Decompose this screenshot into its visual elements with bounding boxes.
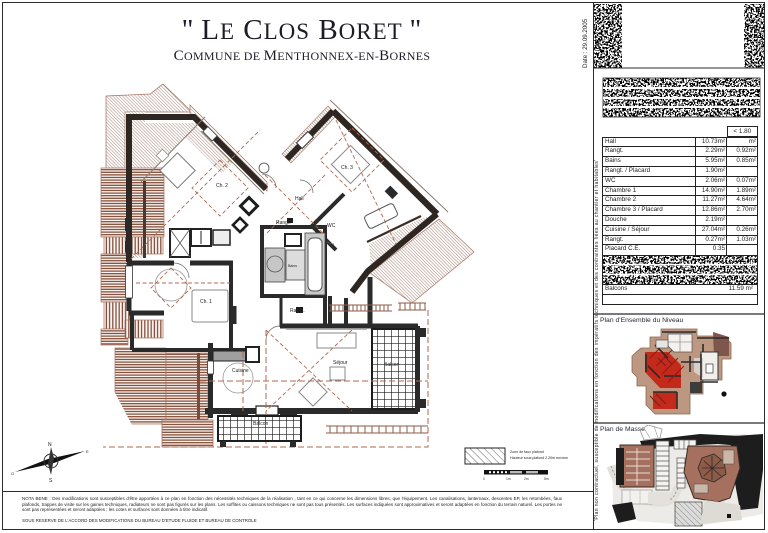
svg-text:Ch. 2: Ch. 2 bbox=[216, 183, 228, 189]
svg-text:S: S bbox=[49, 478, 53, 484]
svg-text:Ch. 3: Ch. 3 bbox=[341, 165, 353, 171]
svg-text:Zone de faux plafond: Zone de faux plafond bbox=[510, 450, 544, 454]
svg-text:0: 0 bbox=[483, 477, 485, 481]
svg-text:E: E bbox=[86, 449, 89, 454]
svg-text:Balcon: Balcon bbox=[253, 421, 269, 427]
svg-text:Bains: Bains bbox=[288, 264, 297, 268]
svg-text:Séjour: Séjour bbox=[333, 360, 348, 366]
svg-text:Rangt.: Rangt. bbox=[290, 308, 305, 314]
svg-text:Balcon: Balcon bbox=[384, 362, 400, 368]
svg-text:2m: 2m bbox=[524, 477, 529, 481]
svg-text:5m: 5m bbox=[544, 477, 549, 481]
svg-text:O: O bbox=[11, 471, 14, 476]
svg-text:N: N bbox=[48, 442, 52, 448]
svg-text:Ch. 1: Ch. 1 bbox=[200, 299, 212, 305]
svg-text:WC: WC bbox=[327, 223, 336, 229]
svg-text:1m: 1m bbox=[506, 477, 511, 481]
svg-text:Hall: Hall bbox=[295, 196, 304, 202]
svg-text:Cuisine: Cuisine bbox=[232, 368, 249, 374]
svg-text:Rangt.: Rangt. bbox=[276, 220, 291, 226]
svg-text:Hauteur sous plafond 2.20m env: Hauteur sous plafond 2.20m environ bbox=[510, 456, 568, 460]
